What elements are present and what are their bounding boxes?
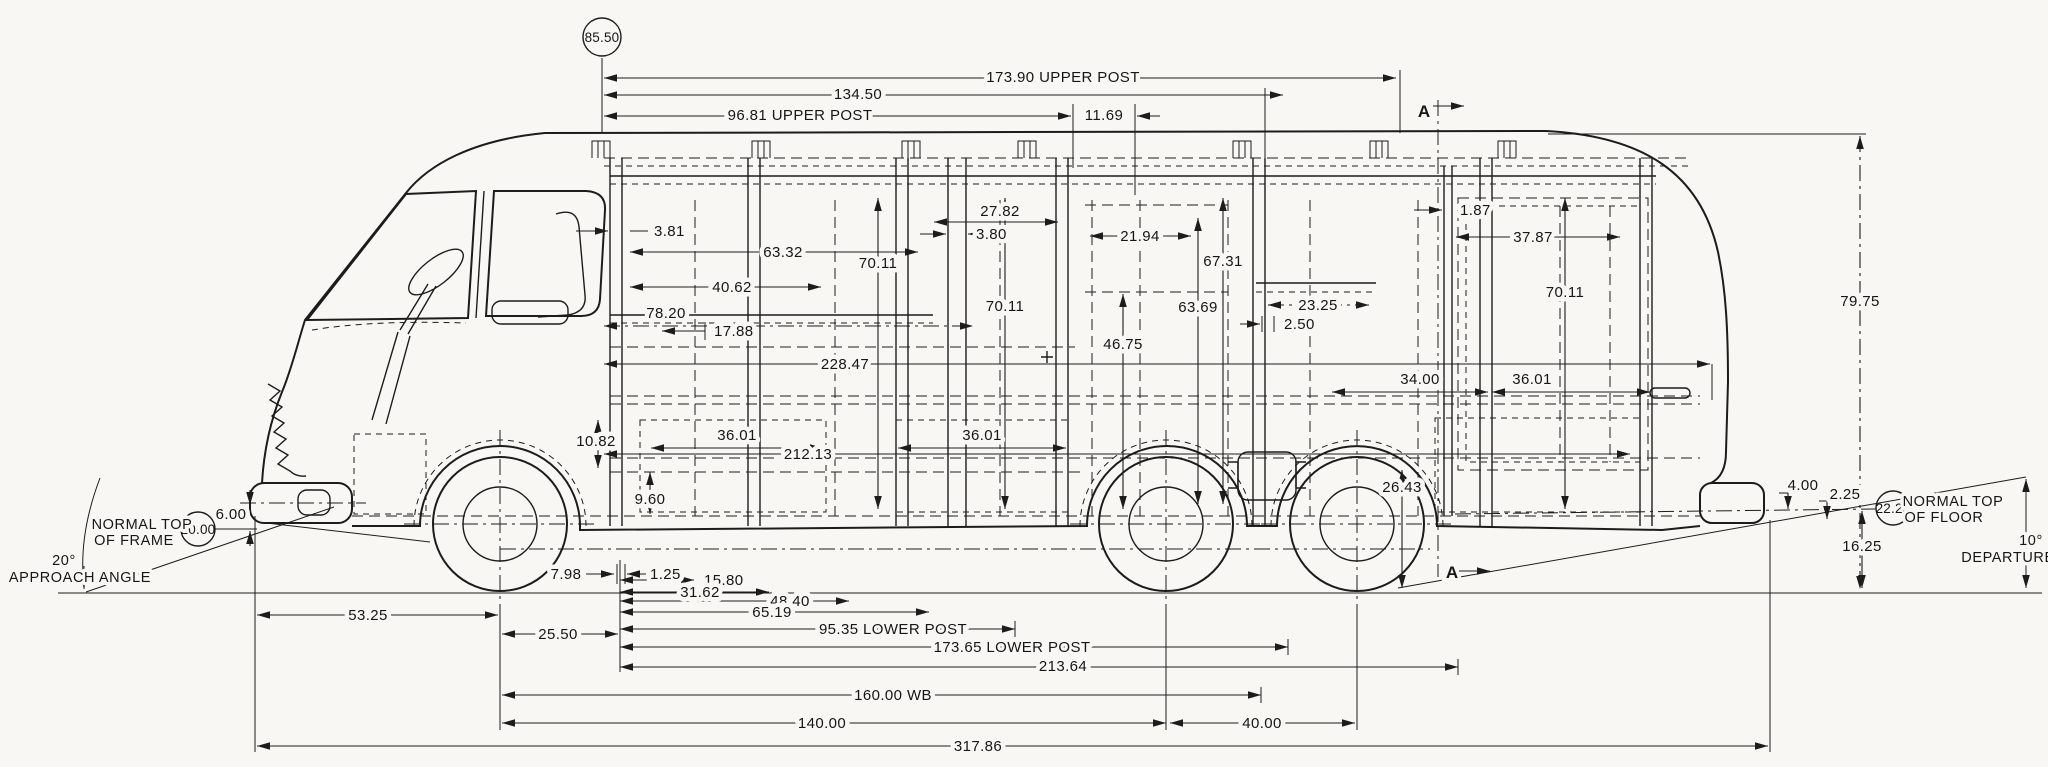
note-normal-top-of-frame-2: OF FRAME xyxy=(94,533,174,549)
dim-78-20: 78.20 xyxy=(646,305,686,322)
dim-26-43: 26.43 xyxy=(1382,479,1422,496)
dim-40-62: 40.62 xyxy=(712,279,752,296)
cab-details xyxy=(307,191,1443,526)
dim-36-01-mid: 36.01 xyxy=(962,427,1002,444)
dim-65-19: 65.19 xyxy=(752,604,792,621)
note-departure-label: DEPARTURE xyxy=(1961,550,2048,566)
steering-wheel xyxy=(402,241,470,302)
dim-21-94: 21.94 xyxy=(1120,228,1160,245)
dim-63-32: 63.32 xyxy=(763,244,803,261)
note-departure-deg: 10° xyxy=(2019,533,2043,549)
rear-wheel-2 xyxy=(1261,430,1453,604)
dim-40-00: 40.00 xyxy=(1242,715,1282,732)
section-marker-a-top: A xyxy=(1418,102,1430,121)
dim-228-47: 228.47 xyxy=(821,356,869,373)
dim-3-80: 3.80 xyxy=(976,226,1007,243)
dim-173-90-upper-post: 173.90 UPPER POST xyxy=(986,69,1140,86)
plus-mark xyxy=(1041,351,1053,363)
section-marker-a-bottom: A xyxy=(1446,563,1458,582)
dim-11-69: 11.69 xyxy=(1085,107,1123,124)
ticks-2-50 xyxy=(1262,316,1274,332)
dim-1-87: 1.87 xyxy=(1460,202,1491,219)
dim-34-00: 34.00 xyxy=(1400,371,1440,388)
dim-16-25: 16.25 xyxy=(1842,538,1882,555)
dim-67-31: 67.31 xyxy=(1203,253,1243,270)
bay-3 xyxy=(1435,418,1640,512)
note-approach-deg: 20° xyxy=(52,553,76,569)
step-well xyxy=(354,434,426,514)
dim-46-75: 46.75 xyxy=(1103,336,1143,353)
dim-36-01-right: 36.01 xyxy=(1512,371,1552,388)
dim-31-62: 31.62 xyxy=(680,584,720,601)
dim-36-01-left: 36.01 xyxy=(717,427,757,444)
dim-96-81-upper-post: 96.81 UPPER POST xyxy=(728,107,873,124)
dim-173-65-lower-post: 173.65 LOWER POST xyxy=(934,639,1091,656)
side-window xyxy=(486,191,605,316)
dim-140-00: 140.00 xyxy=(798,715,846,732)
dim-160-00-wb: 160.00 WB xyxy=(854,687,932,704)
b-pillar xyxy=(476,191,484,318)
dim-23-25: 23.25 xyxy=(1298,297,1338,314)
dim-2-50: 2.50 xyxy=(1284,316,1315,333)
blueprint-sheet: 85.50 20.00 22.25 173.90 UPPER POST 134.… xyxy=(0,0,2048,767)
dim-95-35-lower-post: 95.35 LOWER POST xyxy=(819,621,967,638)
ground-and-angles xyxy=(58,477,2042,593)
note-approach-label: APPROACH ANGLE xyxy=(9,570,151,586)
dim-1-25: 1.25 xyxy=(650,566,681,583)
rear-bumper xyxy=(1700,483,1764,523)
driver-seat-cushion xyxy=(492,301,568,324)
roof-post-caps xyxy=(592,141,1516,158)
ticks-overhang xyxy=(617,564,625,584)
dim-4-00: 4.00 xyxy=(1788,477,1819,494)
dim-70-11-b: 70.11 xyxy=(986,298,1024,315)
dim-10-82: 10.82 xyxy=(576,433,616,450)
note-normal-top-of-floor-2: OF FLOOR xyxy=(1905,510,1984,526)
body-lower-outline xyxy=(352,446,1700,530)
rear-wheel-1 xyxy=(1070,430,1262,604)
dim-9-60: 9.60 xyxy=(635,491,666,508)
dim-70-11-c: 70.11 xyxy=(1546,284,1584,301)
dim-7-98: 7.98 xyxy=(551,566,582,583)
dim-79-75: 79.75 xyxy=(1840,293,1880,310)
dim-53-25: 53.25 xyxy=(348,607,388,624)
rear-window-frame xyxy=(1458,198,1648,470)
dim-25-50: 25.50 xyxy=(538,626,578,643)
dim-37-87: 37.87 xyxy=(1513,229,1553,246)
dim-6-00: 6.00 xyxy=(216,506,247,523)
dim-17-88: 17.88 xyxy=(714,323,754,340)
note-normal-top-of-floor-1: NORMAL TOP xyxy=(1903,494,2004,510)
steering-column xyxy=(372,284,436,424)
dim-2-25: 2.25 xyxy=(1830,486,1861,503)
dim-3-81: 3.81 xyxy=(654,223,685,240)
dim-317-86: 317.86 xyxy=(954,738,1002,755)
dim-134-50: 134.50 xyxy=(834,86,882,103)
generator-box xyxy=(1238,452,1296,500)
dim-213-64: 213.64 xyxy=(1039,658,1087,675)
front-grille-louvers xyxy=(268,384,306,476)
motorhome-dimensional-drawing: 85.50 20.00 22.25 173.90 UPPER POST 134.… xyxy=(0,0,2048,767)
dim-63-69: 63.69 xyxy=(1178,299,1218,316)
labels: 85.50 20.00 22.25 173.90 UPPER POST 134.… xyxy=(9,30,2048,755)
dash-cowl-line xyxy=(312,322,466,330)
overall-height-callout: 85.50 xyxy=(585,30,620,45)
framework xyxy=(352,141,1700,549)
dim-212-13: 212.13 xyxy=(784,446,832,463)
dim-70-11-a: 70.11 xyxy=(859,255,897,272)
floor-datum-line xyxy=(1455,506,1942,514)
dim-27-82: 27.82 xyxy=(980,203,1020,220)
note-normal-top-of-frame-1: NORMAL TOP xyxy=(92,517,193,533)
